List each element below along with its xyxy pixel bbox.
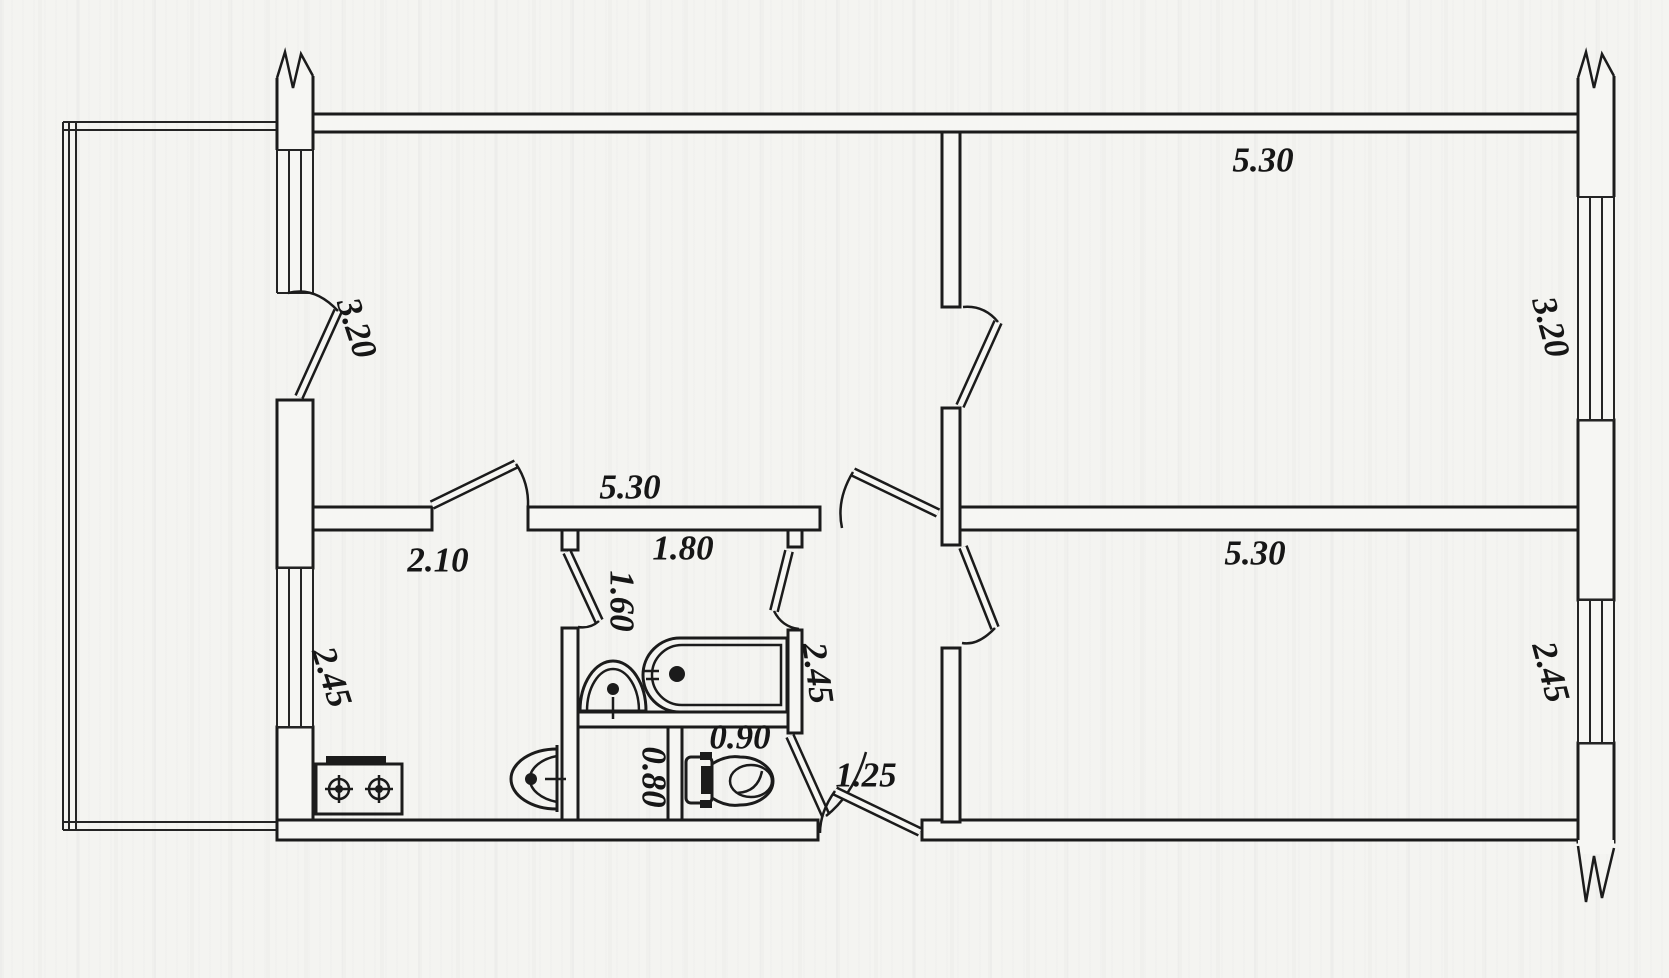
kitchen-living-door xyxy=(432,464,528,507)
wall-hall-right xyxy=(960,507,1578,530)
top-wall xyxy=(313,114,1578,132)
wall-center-mid xyxy=(942,408,960,545)
window-living-room xyxy=(277,150,313,293)
window-bedroom-bottom xyxy=(1578,600,1614,743)
entry-door xyxy=(820,791,920,833)
dim-wc-width: 0.90 xyxy=(709,718,770,757)
wall-hall-left xyxy=(528,507,820,530)
dim-bathroom-depth: 1.60 xyxy=(603,570,642,631)
wall-bath-left-notch xyxy=(562,530,578,550)
interior-walls xyxy=(313,132,1578,822)
dim-closet-width: 0.80 xyxy=(635,746,674,807)
dim-room-top-right-depth: 3.20 xyxy=(1524,291,1578,361)
bedroom-bottom-door xyxy=(962,547,995,643)
bathroom-door-left xyxy=(567,552,599,627)
bathroom-door-right xyxy=(774,551,799,629)
bottom-wall-left xyxy=(277,820,818,840)
wash-basin xyxy=(580,661,646,719)
floor-plan-page: 5.30 3.20 5.30 2.10 1.80 1.60 2.45 0.90 … xyxy=(0,0,1669,978)
kitchen-sink xyxy=(511,745,566,812)
wall-center-lower xyxy=(942,648,960,822)
inter-room-door xyxy=(960,307,998,406)
dim-kitchen-width: 2.10 xyxy=(406,541,468,580)
window-kitchen xyxy=(277,568,313,727)
wall-bath-left xyxy=(562,628,578,820)
dim-balcony-door: 3.20 xyxy=(329,292,385,363)
balcony-railing xyxy=(63,122,277,830)
left-wall-low xyxy=(277,727,313,822)
right-wall-low xyxy=(1578,743,1614,842)
gas-stove xyxy=(316,756,402,814)
dim-room-top-left-width: 5.30 xyxy=(599,468,660,507)
wall-break-top-left xyxy=(277,52,313,150)
right-wall-mid xyxy=(1578,420,1614,600)
dim-room-top-right-width: 5.30 xyxy=(1232,141,1293,180)
window-bedroom-top xyxy=(1578,197,1614,420)
wall-wc-right-notch xyxy=(788,530,802,547)
dim-room-bottom-right-depth: 2.45 xyxy=(1524,636,1578,706)
dim-entry-hall-width: 1.25 xyxy=(835,756,896,795)
toilet xyxy=(686,752,773,808)
dim-room-bottom-right-width: 5.30 xyxy=(1224,534,1285,573)
dim-bathroom-width: 1.80 xyxy=(652,529,713,568)
left-wall-mid xyxy=(277,400,313,568)
wall-break-bottom-right xyxy=(1578,840,1614,902)
bathtub xyxy=(643,638,787,712)
wall-living-kitchen xyxy=(313,507,432,530)
bedroom-top-door xyxy=(840,472,938,528)
wall-break-top-right xyxy=(1578,52,1614,197)
wall-center-upper xyxy=(942,132,960,307)
floor-plan-drawing: 5.30 3.20 5.30 2.10 1.80 1.60 2.45 0.90 … xyxy=(0,0,1669,978)
bottom-wall-right xyxy=(922,820,1613,840)
